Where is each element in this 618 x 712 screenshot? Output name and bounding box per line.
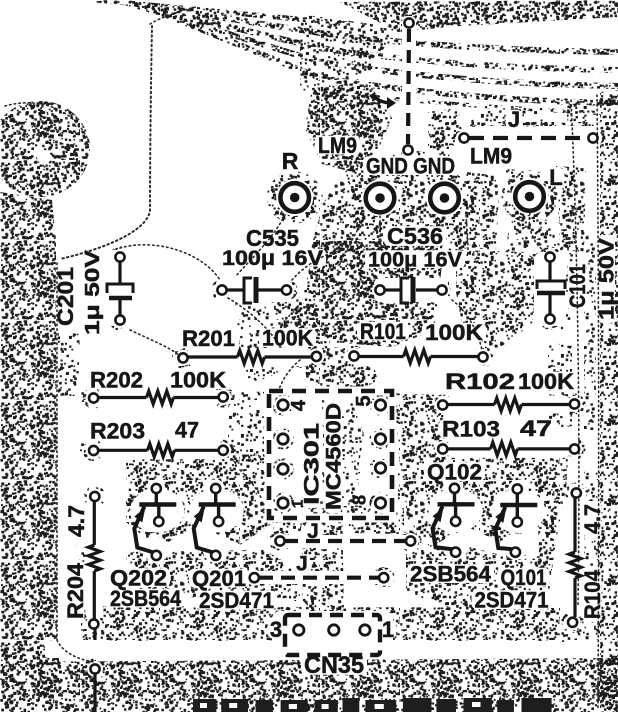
svg-text:1: 1 (382, 617, 394, 642)
svg-text:C536: C536 (387, 223, 443, 249)
svg-text:100K: 100K (262, 325, 313, 350)
svg-text:LM9: LM9 (318, 133, 357, 158)
svg-text:R201: R201 (182, 326, 235, 351)
svg-text:L: L (549, 165, 562, 190)
svg-text:2SD471: 2SD471 (475, 587, 549, 612)
svg-text:100K: 100K (425, 320, 483, 345)
svg-text:Q101: Q101 (501, 565, 547, 590)
svg-text:R103: R103 (442, 416, 500, 441)
svg-text:GND GND: GND GND (366, 153, 455, 178)
svg-text:100μ 16V: 100μ 16V (368, 249, 462, 272)
svg-text:47: 47 (520, 416, 552, 441)
svg-text:C201: C201 (53, 267, 78, 326)
svg-text:C101: C101 (565, 264, 590, 308)
svg-text:R204: R204 (63, 562, 88, 619)
svg-text:8: 8 (349, 495, 369, 505)
svg-text:1μ 50V: 1μ 50V (596, 238, 618, 320)
svg-text:IC301: IC301 (301, 423, 324, 505)
svg-text:2SB564: 2SB564 (110, 586, 182, 611)
svg-text:LM9: LM9 (470, 143, 512, 168)
svg-text:100K: 100K (170, 367, 226, 392)
svg-text:4.7: 4.7 (580, 504, 605, 534)
svg-text:CN35: CN35 (304, 652, 364, 679)
svg-text:3: 3 (270, 617, 282, 642)
svg-text:100K: 100K (518, 369, 574, 394)
svg-text:MC4560D: MC4560D (323, 403, 346, 510)
svg-text:R104: R104 (580, 569, 605, 619)
svg-text:R: R (282, 148, 299, 174)
svg-text:100μ 16V: 100μ 16V (222, 247, 323, 270)
svg-text:2SD471: 2SD471 (199, 588, 274, 613)
svg-text:1: 1 (289, 500, 306, 508)
svg-text:J: J (296, 553, 308, 576)
svg-text:4: 4 (288, 399, 310, 411)
svg-text:J: J (508, 107, 520, 132)
svg-text:R202: R202 (90, 367, 143, 392)
svg-text:R203: R203 (90, 418, 145, 443)
svg-text:1μ 50V: 1μ 50V (82, 249, 104, 335)
svg-text:47: 47 (175, 417, 199, 442)
svg-text:5: 5 (353, 395, 375, 406)
svg-text:R102: R102 (445, 369, 515, 394)
svg-text:Q102: Q102 (427, 459, 482, 484)
svg-text:J: J (307, 520, 319, 543)
svg-text:2SB564: 2SB564 (410, 561, 492, 586)
svg-text:4.7: 4.7 (64, 505, 89, 537)
svg-text:R101: R101 (360, 319, 406, 344)
